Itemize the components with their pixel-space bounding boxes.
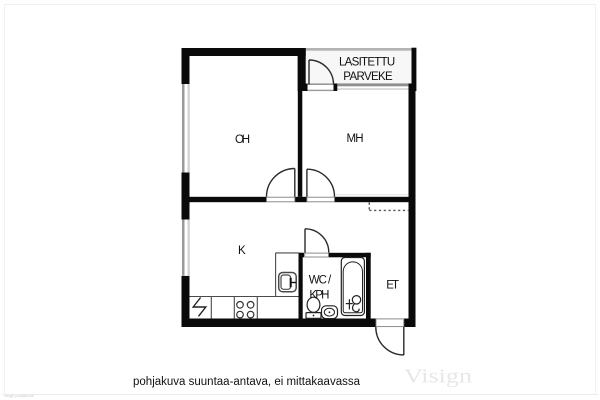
svg-text:KPH: KPH [309, 290, 329, 302]
svg-text:OH: OH [235, 134, 250, 146]
svg-text:LASITETTU: LASITETTU [339, 56, 395, 68]
svg-text:pohjakuva suuntaa-antava, ei m: pohjakuva suuntaa-antava, ei mittakaavas… [133, 376, 361, 388]
svg-text:MH: MH [347, 133, 364, 145]
svg-text:Visign: Visign [404, 367, 472, 388]
svg-text:PARVEKE: PARVEKE [343, 71, 393, 83]
svg-text:visign pohjakuva: visign pohjakuva [4, 393, 34, 398]
svg-text:K: K [238, 245, 246, 257]
svg-text:ET: ET [386, 279, 399, 291]
svg-text:WC /: WC / [309, 274, 332, 286]
